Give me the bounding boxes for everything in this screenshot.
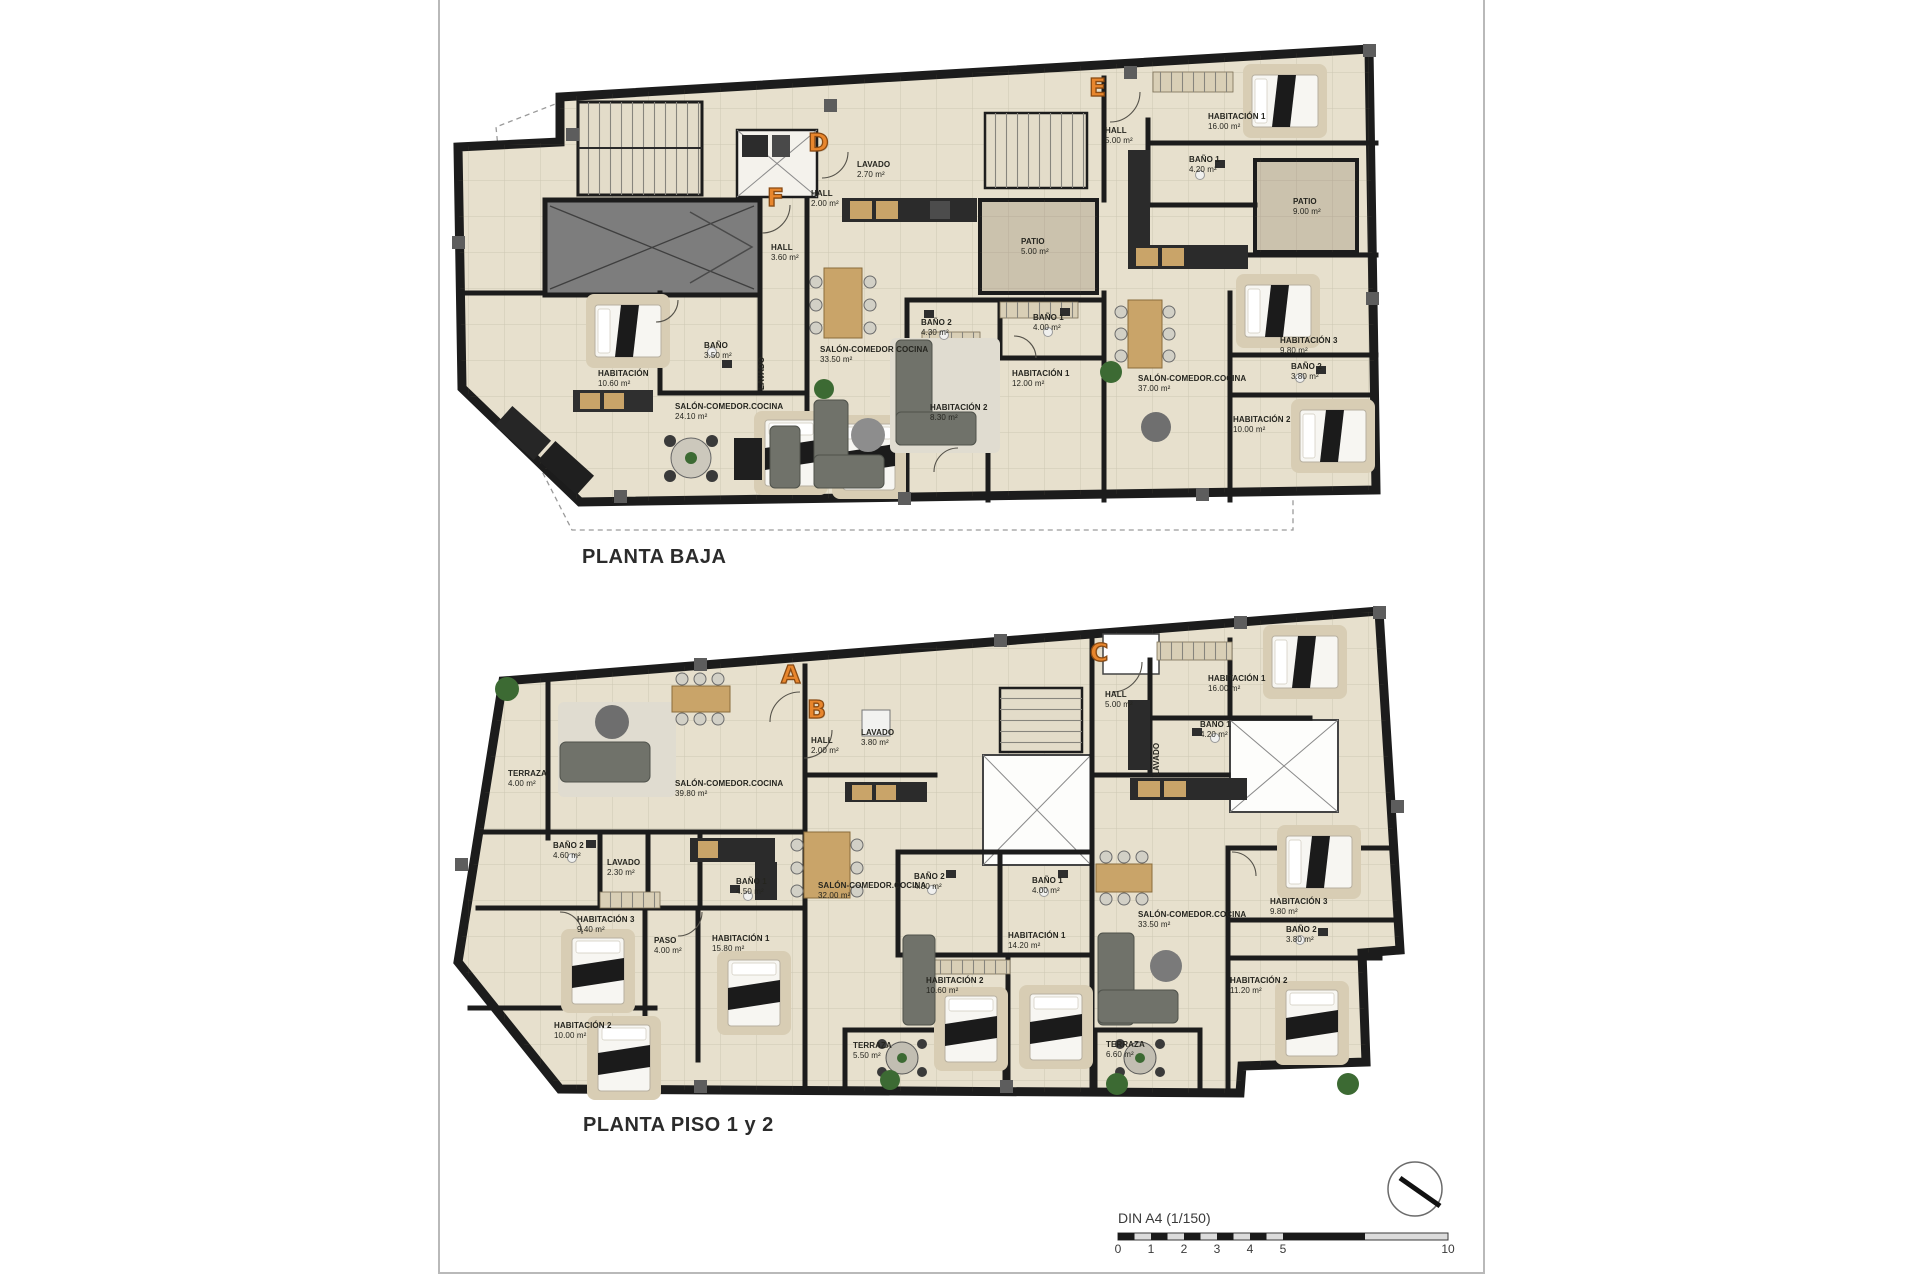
room-area: 5.00 m²: [1105, 136, 1133, 146]
room-area: 2.30 m²: [607, 868, 640, 878]
room-name: BAÑO 1: [1189, 155, 1220, 165]
scale-tick: 0: [1115, 1242, 1122, 1256]
scale-tick: 1: [1148, 1242, 1155, 1256]
room-label: HABITACIÓN 39.80 m²: [1270, 897, 1328, 917]
room-label: TERRAZA4.00 m²: [508, 769, 547, 789]
room-area: 5.00 m²: [1021, 247, 1049, 257]
apartment-letter-c: C: [1090, 638, 1108, 667]
floor-plan-page: F D E A B C HALL3.60 m² BAÑO3.50 m² LAVA…: [0, 0, 1920, 1280]
room-area: 3.80 m²: [861, 738, 894, 748]
room-area: 9.40 m²: [577, 925, 635, 935]
room-name: HABITACIÓN 2: [930, 403, 988, 413]
room-label: HABITACIÓN 39.40 m²: [577, 915, 635, 935]
room-label: HABITACIÓN10.60 m²: [598, 369, 649, 389]
room-area: 4.30 m²: [914, 882, 945, 892]
room-name: LAVADO: [607, 858, 640, 868]
room-name: HABITACIÓN 2: [554, 1021, 612, 1031]
room-label: LAVADO: [757, 357, 767, 390]
room-area: 3.50 m²: [704, 351, 732, 361]
north-arrow-icon: [1388, 1162, 1442, 1216]
room-area: 3.60 m²: [771, 253, 799, 263]
room-area: 4.00 m²: [1032, 886, 1063, 896]
room-area: 33.50 m²: [820, 355, 928, 365]
room-name: PASO: [654, 936, 682, 946]
apartment-letter-a: A: [781, 660, 800, 689]
room-label: HABITACIÓN 116.00 m²: [1208, 674, 1266, 694]
room-label: PASO4.00 m²: [654, 936, 682, 956]
room-name: HALL: [1105, 690, 1133, 700]
garage-ramp: [545, 200, 760, 295]
room-name: TERRAZA: [508, 769, 547, 779]
room-label: HABITACIÓN 28.30 m²: [930, 403, 988, 423]
room-label: LAVADO2.70 m²: [857, 160, 890, 180]
room-name: BAÑO 1: [736, 877, 767, 887]
scale-label: DIN A4 (1/150): [1118, 1210, 1211, 1226]
staircase: [578, 102, 702, 195]
apartment-letter-b: B: [807, 695, 826, 724]
room-area: 16.00 m²: [1208, 122, 1266, 132]
room-name: HABITACIÓN 1: [1008, 931, 1066, 941]
room-area: 10.00 m²: [1233, 425, 1291, 435]
room-label: LAVADO2.30 m²: [607, 858, 640, 878]
room-name: PATIO: [1293, 197, 1321, 207]
room-name: HALL: [811, 189, 839, 199]
scale-tick: 4: [1247, 1242, 1254, 1256]
room-label: SALÓN-COMEDOR.COCINA24.10 m²: [675, 402, 783, 422]
scale-tick: 2: [1181, 1242, 1188, 1256]
room-area: 15.80 m²: [712, 944, 770, 954]
room-label: TERRAZA5.50 m²: [853, 1041, 892, 1061]
room-label: BAÑO 14.20 m²: [1189, 155, 1220, 175]
room-name: SALÓN-COMEDOR.COCINA: [675, 779, 783, 789]
room-name: HABITACIÓN 2: [1230, 976, 1288, 986]
room-area: 4.00 m²: [1033, 323, 1064, 333]
room-area: 32.00 m²: [818, 891, 926, 901]
room-label: BAÑO 23.80 m²: [1291, 362, 1322, 382]
room-area: 12.00 m²: [1012, 379, 1070, 389]
room-name: PATIO: [1021, 237, 1049, 247]
room-name: BAÑO 1: [1033, 313, 1064, 323]
room-name: HABITACIÓN 3: [577, 915, 635, 925]
room-area: 39.80 m²: [675, 789, 783, 799]
room-area: 3.80 m²: [1286, 935, 1317, 945]
room-name: HABITACIÓN 3: [1270, 897, 1328, 907]
room-label: HALL2.00 m²: [811, 189, 839, 209]
room-name: BAÑO 2: [921, 318, 952, 328]
room-name: HABITACIÓN 1: [1012, 369, 1070, 379]
room-label: BAÑO 23.80 m²: [1286, 925, 1317, 945]
room-label: HALL3.60 m²: [771, 243, 799, 263]
room-label: SALÓN-COMEDOR.COCINA39.80 m²: [675, 779, 783, 799]
room-label: HABITACIÓN 112.00 m²: [1012, 369, 1070, 389]
room-area: 10.60 m²: [598, 379, 649, 389]
room-label: BAÑO 14.50 m²: [736, 877, 767, 897]
room-area: 10.00 m²: [554, 1031, 612, 1041]
room-area: 9.80 m²: [1270, 907, 1328, 917]
room-label: LAVADO3.80 m²: [861, 728, 894, 748]
apartment-letter-e: E: [1089, 73, 1106, 102]
plan-title-planta-baja: PLANTA BAJA: [582, 546, 726, 569]
room-name: LAVADO: [1152, 743, 1162, 776]
room-label: HABITACIÓN 114.20 m²: [1008, 931, 1066, 951]
room-label: HABITACIÓN 210.00 m²: [1233, 415, 1291, 435]
room-name: HABITACIÓN 2: [1233, 415, 1291, 425]
room-label: HABITACIÓN 210.60 m²: [926, 976, 984, 996]
room-area: 3.80 m²: [1291, 372, 1322, 382]
room-name: HABITACIÓN 2: [926, 976, 984, 986]
room-label: BAÑO 24.30 m²: [914, 872, 945, 892]
room-area: 4.00 m²: [654, 946, 682, 956]
room-label: SALÓN-COMEDOR COCINA33.50 m²: [820, 345, 928, 365]
room-name: BAÑO 2: [553, 841, 584, 851]
scale-tick: 5: [1280, 1242, 1287, 1256]
room-area: 6.60 m²: [1106, 1050, 1145, 1060]
room-name: BAÑO 2: [1291, 362, 1322, 372]
room-name: BAÑO 2: [1286, 925, 1317, 935]
room-label: HALL5.00 m²: [1105, 126, 1133, 146]
room-label: BAÑO 14.00 m²: [1033, 313, 1064, 333]
room-area: 16.00 m²: [1208, 684, 1266, 694]
room-area: 4.60 m²: [553, 851, 584, 861]
room-name: LAVADO: [861, 728, 894, 738]
room-area: 11.20 m²: [1230, 986, 1288, 996]
room-label: HABITACIÓN 210.00 m²: [554, 1021, 612, 1041]
room-area: 5.50 m²: [853, 1051, 892, 1061]
room-label: BAÑO 24.60 m²: [553, 841, 584, 861]
room-area: 33.50 m²: [1138, 920, 1246, 930]
room-name: HABITACIÓN: [598, 369, 649, 379]
room-name: HABITACIÓN 3: [1280, 336, 1338, 346]
room-name: BAÑO 2: [914, 872, 945, 882]
room-area: 4.30 m²: [921, 328, 952, 338]
room-name: SALÓN-COMEDOR COCINA: [820, 345, 928, 355]
room-name: BAÑO 1: [1032, 876, 1063, 886]
room-name: TERRAZA: [853, 1041, 892, 1051]
room-label: HALL2.00 m²: [811, 736, 839, 756]
room-area: 2.00 m²: [811, 199, 839, 209]
room-name: SALÓN-COMEDOR.COCINA: [1138, 374, 1246, 384]
room-name: HALL: [771, 243, 799, 253]
room-area: 4.00 m²: [508, 779, 547, 789]
room-name: BAÑO: [704, 341, 732, 351]
scale-tick: 10: [1441, 1242, 1454, 1256]
room-area: 8.30 m²: [930, 413, 988, 423]
floor-plan-drawing: [0, 0, 1920, 1280]
room-area: 4.50 m²: [736, 887, 767, 897]
room-label: SALÓN-COMEDOR.COCINA37.00 m²: [1138, 374, 1246, 394]
room-label: TERRAZA6.60 m²: [1106, 1040, 1145, 1060]
room-name: HALL: [811, 736, 839, 746]
apartment-letter-d: D: [808, 128, 829, 157]
room-label: HALL5.00 m²: [1105, 690, 1133, 710]
plan-title-planta-piso: PLANTA PISO 1 y 2: [583, 1114, 774, 1137]
room-name: LAVADO: [757, 357, 767, 390]
room-label: SALÓN-COMEDOR.COCINA32.00 m²: [818, 881, 926, 901]
room-name: BAÑO 1: [1200, 720, 1231, 730]
room-area: 5.00 m²: [1105, 700, 1133, 710]
room-area: 4.20 m²: [1200, 730, 1231, 740]
room-label: HABITACIÓN 116.00 m²: [1208, 112, 1266, 132]
room-label: LAVADO: [1152, 743, 1162, 776]
room-label: BAÑO 14.00 m²: [1032, 876, 1063, 896]
room-area: 10.60 m²: [926, 986, 984, 996]
room-label: SALÓN-COMEDOR.COCINA33.50 m²: [1138, 910, 1246, 930]
room-area: 2.70 m²: [857, 170, 890, 180]
room-label: PATIO5.00 m²: [1021, 237, 1049, 257]
room-area: 14.20 m²: [1008, 941, 1066, 951]
scale-tick: 3: [1214, 1242, 1221, 1256]
room-area: 9.00 m²: [1293, 207, 1321, 217]
room-label: BAÑO 24.30 m²: [921, 318, 952, 338]
room-area: 4.20 m²: [1189, 165, 1220, 175]
scale-bar: [1118, 1233, 1448, 1240]
room-label: HABITACIÓN 211.20 m²: [1230, 976, 1288, 996]
apartment-letter-f: F: [767, 183, 784, 212]
room-label: PATIO9.00 m²: [1293, 197, 1321, 217]
room-name: TERRAZA: [1106, 1040, 1145, 1050]
room-name: SALÓN-COMEDOR.COCINA: [1138, 910, 1246, 920]
room-name: HABITACIÓN 1: [712, 934, 770, 944]
room-area: 9.80 m²: [1280, 346, 1338, 356]
room-name: SALÓN-COMEDOR.COCINA: [675, 402, 783, 412]
room-area: 24.10 m²: [675, 412, 783, 422]
room-area: 2.00 m²: [811, 746, 839, 756]
room-area: 37.00 m²: [1138, 384, 1246, 394]
room-name: HALL: [1105, 126, 1133, 136]
room-label: HABITACIÓN 115.80 m²: [712, 934, 770, 954]
room-label: HABITACIÓN 39.80 m²: [1280, 336, 1338, 356]
room-name: HABITACIÓN 1: [1208, 112, 1266, 122]
room-label: BAÑO 14.20 m²: [1200, 720, 1231, 740]
room-name: SALÓN-COMEDOR.COCINA: [818, 881, 926, 891]
room-label: BAÑO3.50 m²: [704, 341, 732, 361]
room-name: LAVADO: [857, 160, 890, 170]
room-name: HABITACIÓN 1: [1208, 674, 1266, 684]
